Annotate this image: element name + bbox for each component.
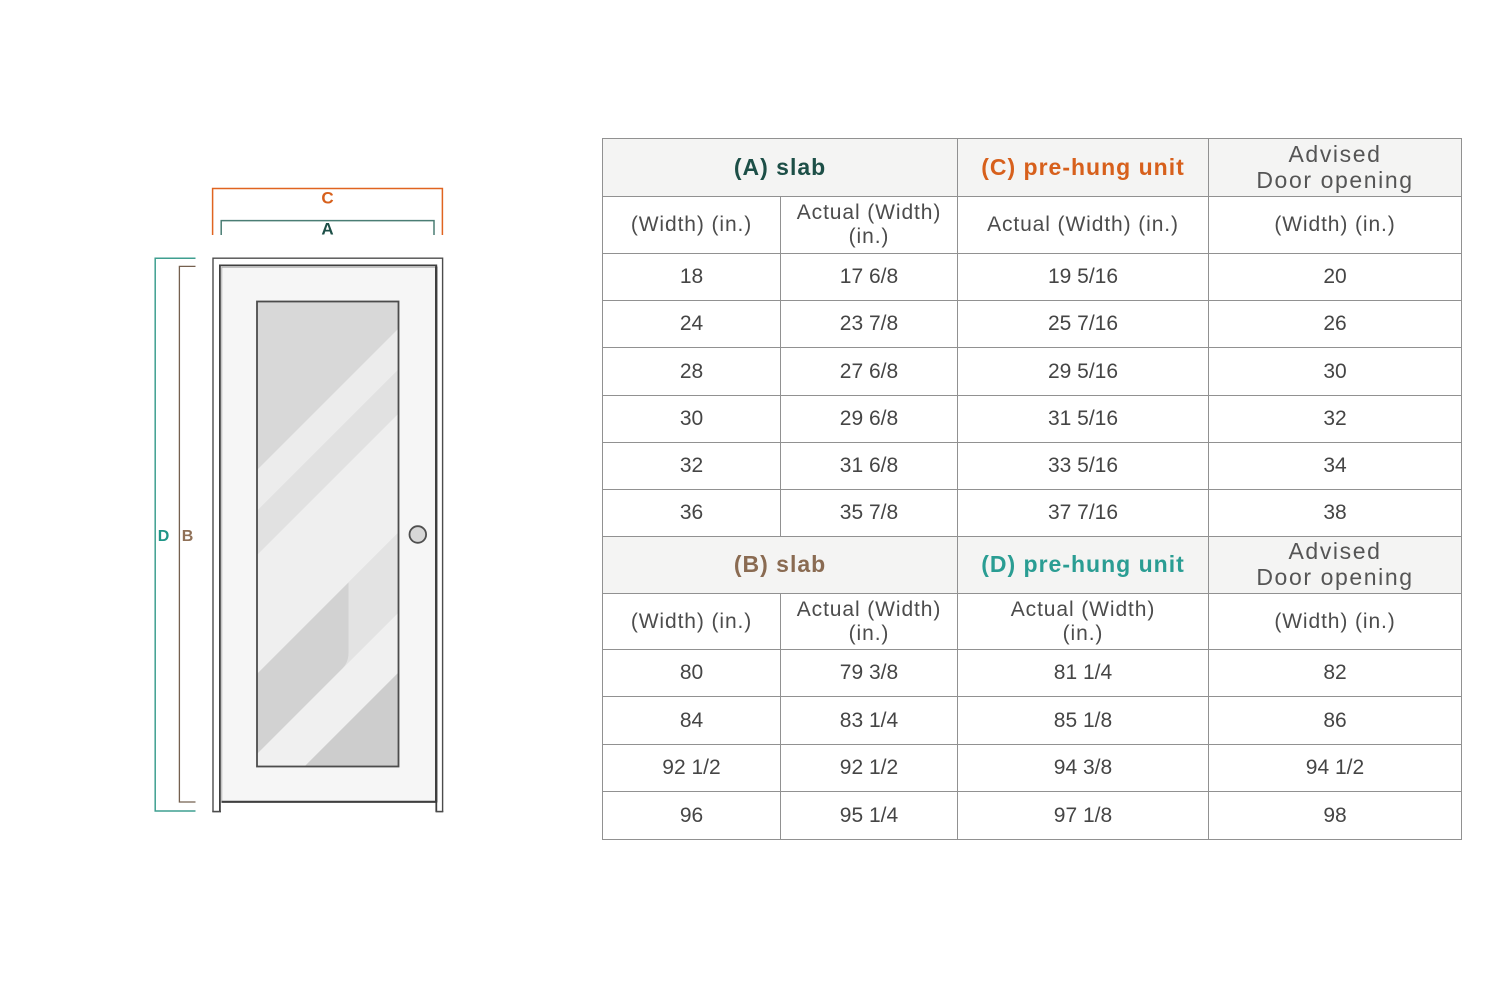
svg-text:B: B bbox=[182, 528, 194, 545]
svg-text:C: C bbox=[321, 189, 333, 208]
svg-text:A: A bbox=[321, 220, 333, 239]
svg-text:D: D bbox=[158, 528, 170, 545]
